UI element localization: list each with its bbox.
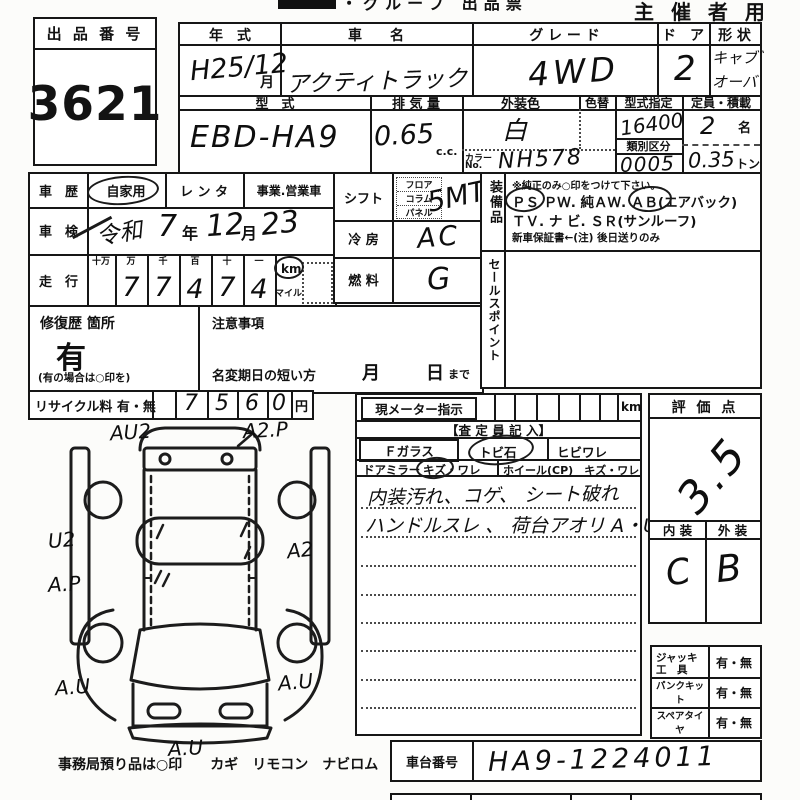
spare-tire-value: 有・無	[708, 707, 760, 737]
lot-number-value: 3621	[35, 50, 155, 158]
exterior-grade: B	[714, 546, 744, 591]
equipment-line1-mid: ＰＷ. 純ＡＷ.	[544, 195, 626, 211]
score-box: 評 価 点 3.5 内 装 外 装 C B	[648, 393, 762, 624]
capacity-unit: 名	[738, 117, 751, 136]
shift-label: シフト	[335, 174, 392, 220]
interior-header: 内 装	[650, 522, 705, 536]
name-value: アクティトラック	[285, 59, 468, 99]
inspection-era: 令和	[94, 211, 145, 252]
door-header: ド ア	[657, 26, 709, 43]
damage-label-au2: AU2	[109, 419, 152, 446]
color-change-header: 色替	[579, 96, 615, 109]
lot-number-header: 出 品 番 号	[35, 19, 155, 50]
interior-grade: C	[663, 551, 694, 595]
chassis-number-value: HA9-1224011	[488, 741, 719, 778]
lot-number-box: 出 品 番 号 3621	[33, 17, 157, 166]
ac-value: AC	[416, 220, 462, 255]
shape-value-line1: キャブ゛	[712, 47, 772, 68]
damage-label-ap: A.P	[47, 571, 81, 597]
rename-deadline-label: 名変期日の短い方	[212, 365, 316, 384]
mileage-unit-mile: マイル	[275, 286, 302, 299]
color-header: 外装色	[462, 96, 579, 109]
damage-label-a2p: A2.P	[242, 417, 288, 443]
repair-box: 修復歴 箇所 有 (有の場合は○印を)	[28, 305, 202, 394]
grade-value: 4WD	[527, 49, 621, 94]
inspection-month-unit: 月	[241, 220, 257, 244]
displacement-value: 0.65	[373, 118, 435, 152]
assessor-note-2: ハンドルスレ 、 荷台アオリ A・U	[365, 511, 657, 538]
score-value: 3.5	[667, 428, 759, 524]
digit-header-100: 百	[179, 255, 211, 265]
year-value: H25/12	[189, 48, 289, 87]
equipment-box: 装備品 ※純正のみ○印をつけて下さい。 ＰＳ ＰＷ. 純ＡＷ. ＡＢ(エアバック…	[480, 172, 762, 254]
inspection-year: 7	[158, 209, 177, 244]
recycle-fee-label: リサイクル料 有・無	[35, 396, 156, 415]
sales-point-box: セールスポイント	[480, 250, 762, 389]
recycle-digit-3: 6	[237, 390, 267, 416]
mileage-digit-10: 7	[211, 268, 243, 306]
model-value: EBD-HA9	[190, 120, 340, 155]
fuel-value: G	[426, 261, 452, 298]
grade-header: グ レ ー ド	[472, 26, 657, 43]
auction-sheet: ・グループ 出品票 主 催 者 用 出 品 番 号 3621 年 式 車 名 グ…	[0, 0, 800, 800]
logo-mark	[278, 0, 336, 9]
damage-label-u2: U2	[47, 527, 76, 553]
spare-tire-label: スペアタイヤ	[652, 707, 708, 737]
history-label: 車 歴	[30, 174, 87, 207]
capacity-value: 2	[700, 112, 715, 140]
assessor-note-1: 内装汚れ、コゲ、 シート破れ	[367, 479, 619, 510]
equipment-line2: ＴＶ. ナ ビ. ＳＲ(サンルーフ)	[512, 210, 696, 230]
equipment-line3: 新車保証書←(注) 後日送りのみ	[512, 230, 660, 245]
year-header: 年 式	[180, 26, 280, 43]
chassis-number-box: 車台番号 HA9-1224011	[390, 740, 762, 782]
capacity-header: 定員・積載	[682, 96, 760, 109]
mileage-label: 走 行	[30, 254, 87, 307]
digit-header-10: 十	[211, 255, 243, 265]
color-no-label-2: No.	[465, 161, 482, 171]
equipment-label: 装備品	[485, 180, 504, 225]
type-designation-value: 16400	[619, 108, 685, 141]
inspection-day: 23	[259, 204, 301, 243]
digit-header-1k: 千	[147, 255, 179, 265]
vehicle-table: 年 式 車 名 グ レ ー ド ド ア 形 状 H25/12 月 アクティトラッ…	[178, 22, 762, 174]
tools-box: ジャッキ 工 具 有・無 パンクキット 有・無 スペアタイヤ 有・無	[650, 645, 762, 739]
jack-tools-label-2: 工 具	[656, 662, 688, 677]
jack-tools-value: 有・無	[708, 647, 760, 677]
recycle-digit-2: 5	[207, 390, 237, 416]
mileage-mile-box	[302, 262, 333, 304]
year-unit: 月	[260, 72, 274, 92]
chassis-number-label: 車台番号	[392, 742, 472, 780]
history-table: 車 歴 自家用 レ ン タ 事業.営業車 車 検 令和 7 年 12 月 23 …	[28, 172, 337, 309]
inspection-month: 12	[205, 207, 246, 245]
form-title-text: ・グループ 出品票	[341, 0, 528, 12]
class-label: 類別区分	[615, 139, 682, 152]
caution-box: 注意事項 名変期日の短い方 月 日 まで	[198, 305, 484, 394]
color-no-value: NH578	[497, 145, 583, 174]
repair-note: (有の場合は○印を)	[38, 370, 130, 385]
load-unit: トン	[736, 155, 760, 172]
inspection-year-unit: 年	[182, 220, 198, 244]
form-title: ・グループ 出品票	[278, 0, 598, 12]
office-deposit-note: 事務局預り品は○印 カギ リモコン ナビロム	[58, 754, 378, 774]
mileage-digit-1k: 7	[147, 268, 179, 306]
recycle-digit-1: 7	[175, 390, 207, 416]
puncture-kit-label: パンクキット	[652, 677, 708, 707]
puncture-kit-value: 有・無	[708, 677, 760, 707]
recycle-unit: 円	[291, 392, 312, 418]
load-value: 0.35	[688, 147, 736, 173]
history-business: 事業.営業車	[243, 174, 335, 207]
repair-label: 修復歴 箇所	[40, 313, 115, 333]
sales-point-label: セールスポイント	[486, 258, 503, 362]
equipment-line1: ＰＳ ＰＷ. 純ＡＷ. ＡＢ(エアバック)	[512, 191, 737, 211]
mileage-digit-100: 4	[179, 270, 211, 308]
color-value: 白	[502, 111, 527, 147]
exterior-header: 外 装	[705, 522, 760, 536]
caution-label: 注意事項	[212, 313, 264, 332]
score-header: 評 価 点	[650, 398, 760, 415]
shape-header: 形 状	[709, 26, 760, 43]
shape-value-line2: オーバ	[712, 71, 757, 92]
damage-label-au-left: A.U	[54, 674, 91, 700]
meter-unit: km	[621, 400, 641, 414]
digit-header-10k: 万	[115, 255, 147, 265]
fuel-label: 燃 料	[335, 257, 392, 302]
door-value: 2	[674, 49, 696, 89]
digit-header-1: 一	[243, 255, 275, 265]
rename-made-label: まで	[448, 366, 470, 382]
ac-label: 冷 房	[335, 220, 392, 257]
digit-header-100k: 十万	[87, 255, 115, 265]
damage-label-au-right: A.U	[277, 669, 314, 696]
bottom-partial-table	[390, 793, 762, 800]
history-rental: レ ン タ	[165, 174, 243, 207]
recycle-digit-4: 0	[267, 390, 291, 416]
equip-column: シフト フロア コラム パネル 5MT 冷 房 AC 燃 料 G	[333, 172, 484, 304]
recycle-fee-box: リサイクル料 有・無 7 5 6 0 円	[28, 390, 314, 420]
mileage-digit-1: 4	[243, 270, 275, 308]
model-header: 型 式	[180, 96, 370, 109]
displacement-unit: c.c.	[436, 145, 457, 158]
rename-month-label: 月	[362, 359, 380, 385]
displacement-header: 排 気 量	[370, 96, 462, 109]
rename-day-label: 日	[426, 359, 444, 385]
name-header: 車 名	[280, 26, 472, 43]
damage-label-a2: A2	[286, 537, 315, 564]
vehicle-diagram	[45, 418, 355, 750]
meter-label-box: 現メーター指示	[361, 397, 477, 420]
type-designation-header: 型式指定	[615, 96, 682, 109]
mileage-digit-10k: 7	[115, 268, 147, 306]
inspection-label: 車 検	[30, 207, 87, 254]
